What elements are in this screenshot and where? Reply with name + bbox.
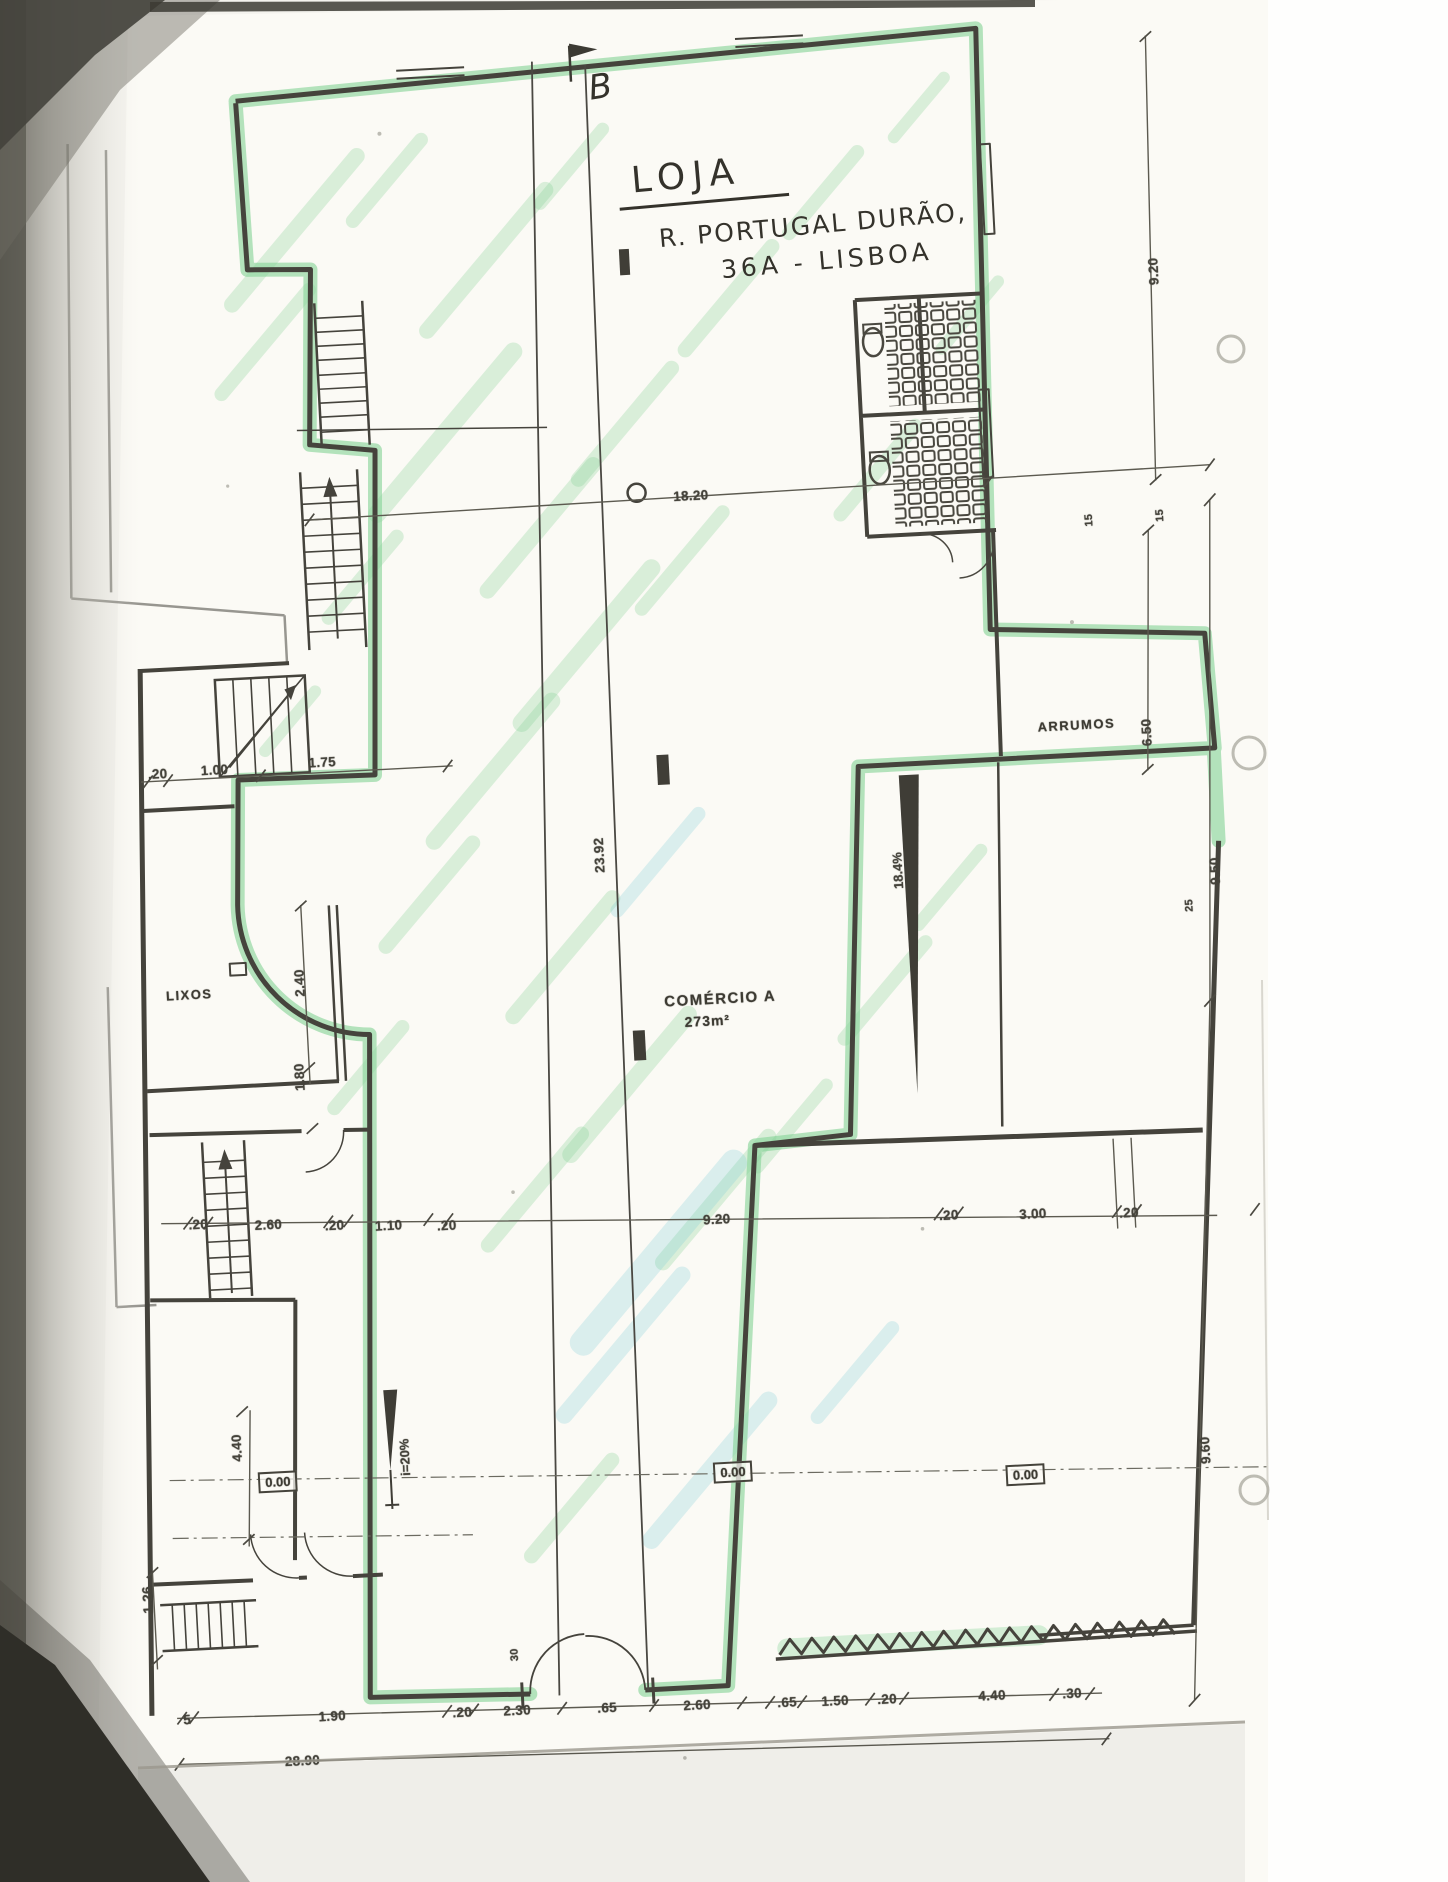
room-label-arrumos: ARRUMOS (1037, 717, 1115, 734)
plan-rotation-wrapper: 18.209.206.501515259.509.6023.92.201.001… (0, 0, 1448, 1882)
handwritten-title: LOJA (616, 147, 789, 211)
level-marker-center: 0.00 (713, 1461, 753, 1484)
section-marker-b: B (586, 66, 615, 109)
room-label-lixos: LIXOS (166, 987, 213, 1002)
ramp-slope-entrance: i=20% (397, 1438, 412, 1476)
level-marker-left: 0.00 (258, 1470, 298, 1493)
room-label-comercio: COMÉRCIO A (664, 989, 777, 1010)
level-marker-right: 0.00 (1005, 1463, 1045, 1486)
ramp-slope-side: 18.4% (890, 852, 905, 890)
room-area-comercio: 273m² (684, 1013, 730, 1029)
scanned-floor-plan: 18.209.206.501515259.509.6023.92.201.001… (0, 0, 1448, 1882)
